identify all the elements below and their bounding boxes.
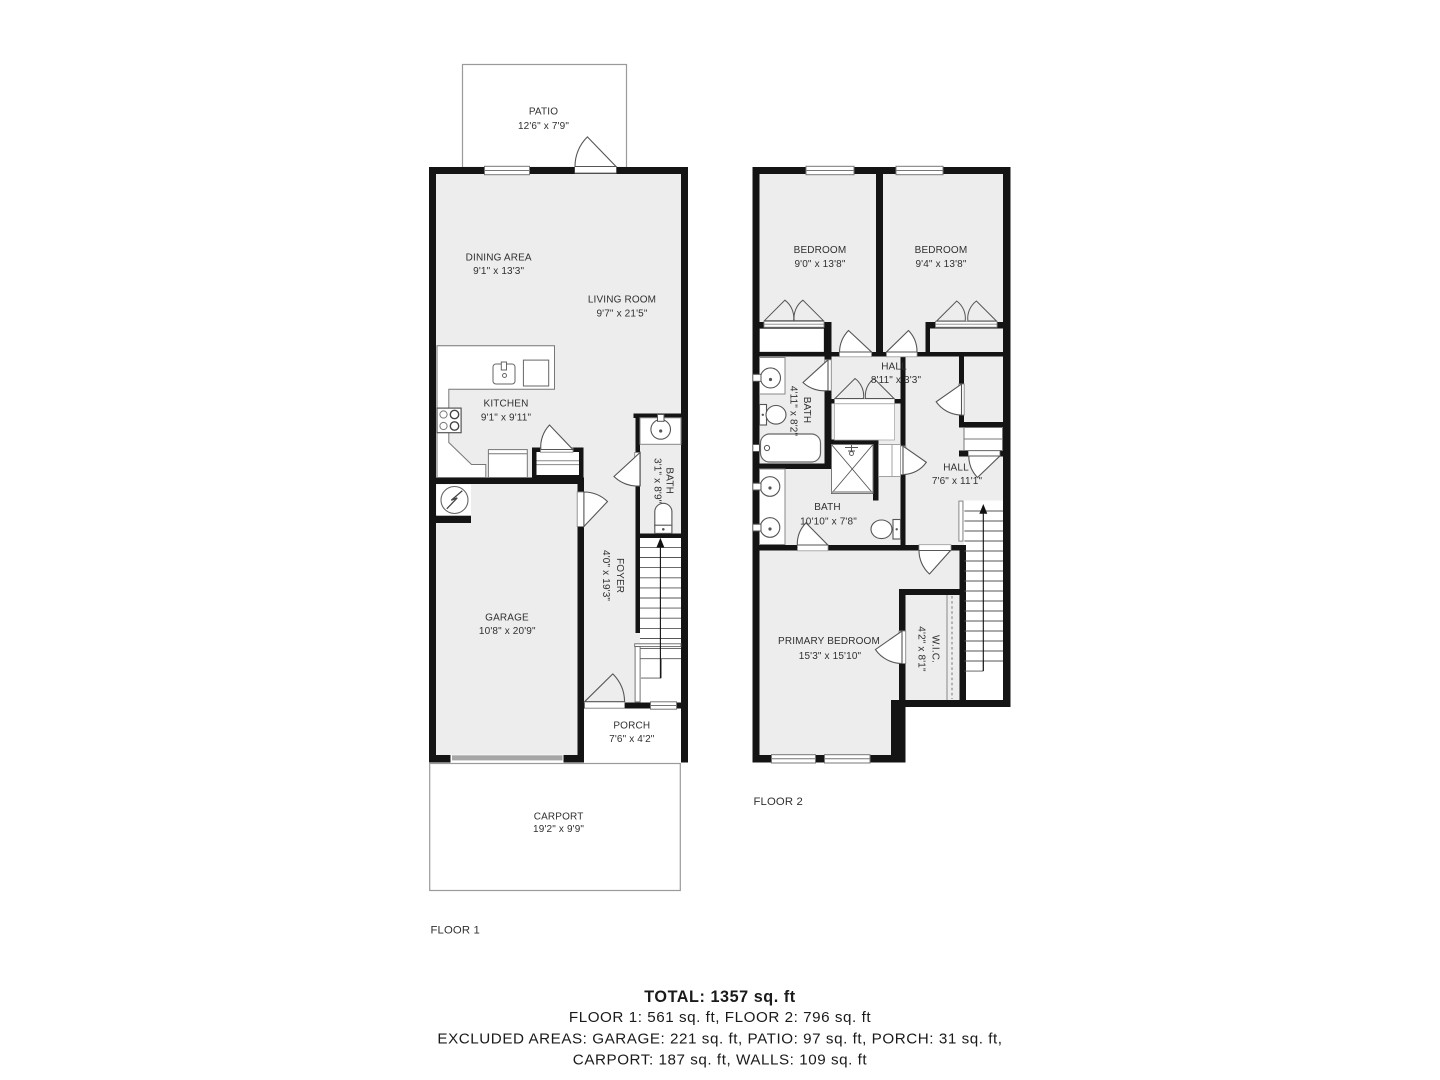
svg-text:PATIO: PATIO (529, 107, 558, 118)
svg-text:BEDROOM: BEDROOM (794, 245, 847, 256)
svg-text:9'0" x 13'8": 9'0" x 13'8" (794, 259, 845, 270)
svg-text:3'1" x 8'9": 3'1" x 8'9" (652, 458, 663, 504)
svg-text:15'3" x 15'10": 15'3" x 15'10" (799, 651, 862, 662)
svg-text:4'2" x 8'1": 4'2" x 8'1" (915, 626, 926, 672)
svg-text:BEDROOM: BEDROOM (915, 245, 968, 256)
svg-text:BATH: BATH (663, 467, 674, 494)
svg-text:12'6" x 7'9": 12'6" x 7'9" (518, 121, 569, 132)
svg-text:CARPORT: CARPORT (534, 812, 584, 823)
svg-text:7'6" x 4'2": 7'6" x 4'2" (609, 734, 655, 745)
svg-text:BATH: BATH (801, 397, 812, 424)
svg-text:DINING AREA: DINING AREA (466, 253, 532, 264)
svg-text:KITCHEN: KITCHEN (484, 399, 529, 410)
svg-text:7'6" x 11'1": 7'6" x 11'1" (932, 476, 983, 487)
svg-text:8'11" x 3'3": 8'11" x 3'3" (871, 375, 922, 386)
svg-text:TOTAL: 1357 sq. ft: TOTAL: 1357 sq. ft (644, 988, 795, 1006)
svg-text:FOYER: FOYER (614, 558, 625, 593)
svg-text:HALL: HALL (881, 362, 907, 373)
svg-text:BATH: BATH (814, 502, 841, 513)
svg-text:4'11" x 8'2": 4'11" x 8'2" (787, 386, 798, 437)
svg-text:PRIMARY BEDROOM: PRIMARY BEDROOM (778, 636, 880, 647)
svg-text:19'2" x 9'9": 19'2" x 9'9" (533, 824, 584, 835)
svg-text:9'1" x 13'3": 9'1" x 13'3" (473, 266, 524, 277)
svg-text:W.I.C.: W.I.C. (930, 635, 941, 663)
svg-text:CARPORT: 187 sq. ft, WALLS: 10: CARPORT: 187 sq. ft, WALLS: 109 sq. ft (573, 1052, 868, 1069)
svg-text:GARAGE: GARAGE (485, 613, 529, 624)
svg-text:FLOOR 2: FLOOR 2 (754, 796, 803, 808)
svg-text:10'10" x 7'8": 10'10" x 7'8" (800, 517, 857, 528)
svg-text:HALL: HALL (943, 463, 969, 474)
svg-text:10'8" x 20'9": 10'8" x 20'9" (479, 626, 536, 637)
svg-text:EXCLUDED AREAS: GARAGE: 221 sq: EXCLUDED AREAS: GARAGE: 221 sq. ft, PATI… (437, 1031, 1002, 1048)
svg-text:9'7" x 21'5": 9'7" x 21'5" (596, 309, 647, 320)
svg-text:FLOOR 1: FLOOR 1 (431, 925, 480, 937)
svg-text:9'1" x 9'11": 9'1" x 9'11" (481, 413, 532, 424)
svg-text:PORCH: PORCH (613, 721, 650, 732)
svg-text:4'0" x 19'3": 4'0" x 19'3" (600, 550, 611, 601)
svg-text:FLOOR 1: 561 sq. ft, FLOOR 2:: FLOOR 1: 561 sq. ft, FLOOR 2: 796 sq. ft (569, 1009, 871, 1026)
svg-text:LIVING ROOM: LIVING ROOM (588, 295, 656, 306)
svg-text:9'4" x 13'8": 9'4" x 13'8" (915, 259, 966, 270)
